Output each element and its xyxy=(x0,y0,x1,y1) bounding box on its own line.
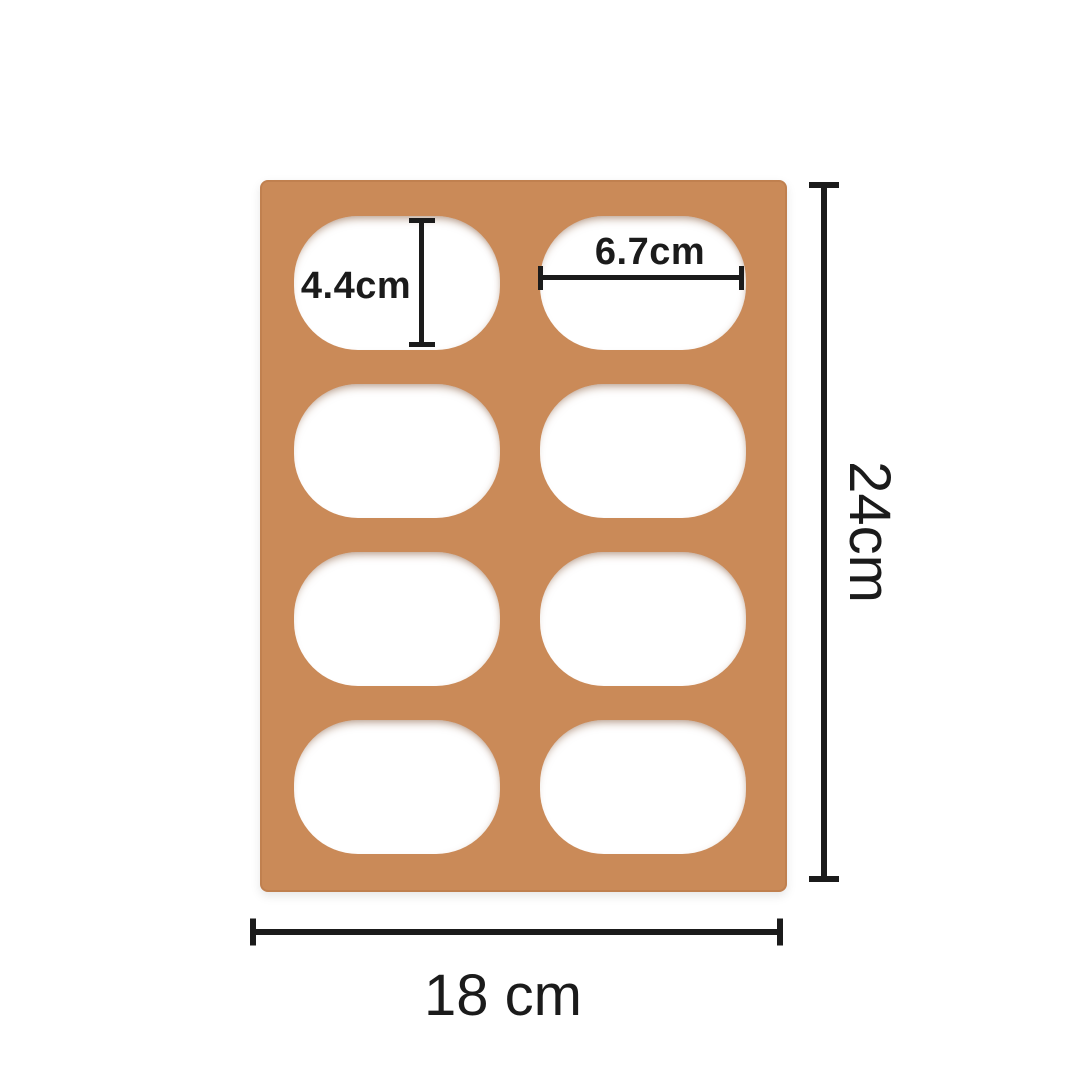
mat-width-label: 18 cm xyxy=(424,967,582,1025)
mat-width-dimension-line xyxy=(250,929,783,935)
mat-height-dimension-line xyxy=(821,182,827,882)
hole-height-dimension-line xyxy=(419,218,424,347)
hole-width-dimension-line xyxy=(538,275,744,280)
mold-cavity-3 xyxy=(294,384,500,518)
mold-cavity-8 xyxy=(540,720,746,854)
mold-cavity-7 xyxy=(294,720,500,854)
mold-cavity-6 xyxy=(540,552,746,686)
mold-cavity-5 xyxy=(294,552,500,686)
product-dimension-diagram: 4.4cm 6.7cm 24cm 18 cm xyxy=(0,0,1080,1080)
hole-width-label: 6.7cm xyxy=(595,233,705,271)
mold-cavity-4 xyxy=(540,384,746,518)
hole-height-label: 4.4cm xyxy=(301,267,411,305)
mat-height-label: 24cm xyxy=(840,461,898,603)
